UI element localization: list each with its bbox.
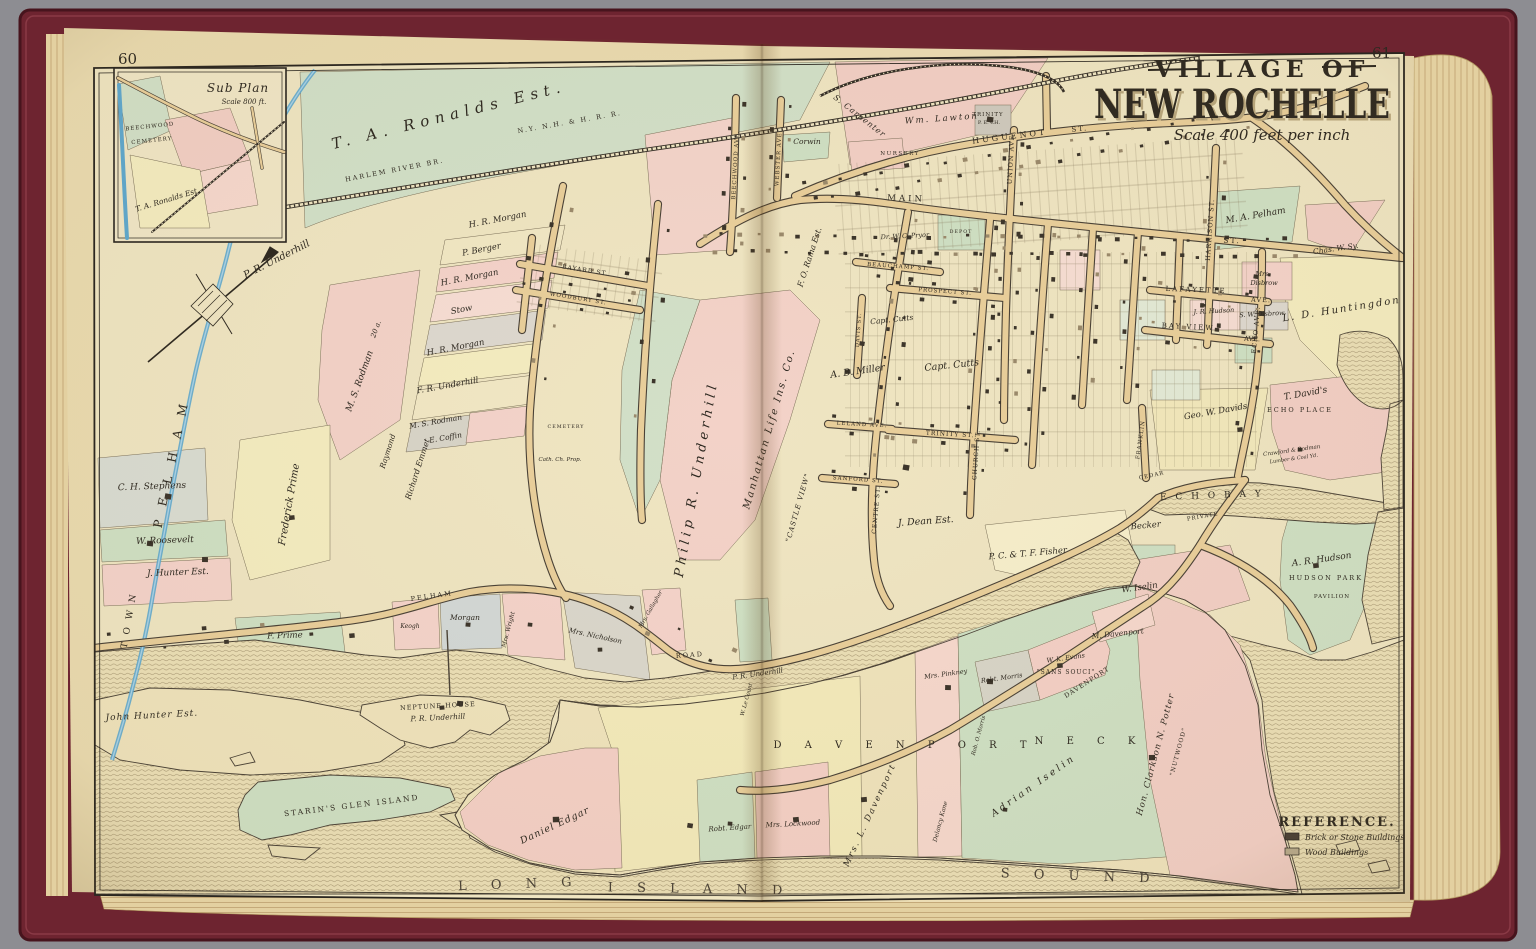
left-page-edges (46, 34, 68, 896)
atlas-photo: © Cartography Associates, David Rumsey C… (0, 0, 1536, 949)
map-scan-svg: © Cartography Associates, David Rumsey C… (0, 0, 1536, 949)
page-vignette (64, 28, 1414, 902)
right-page-edges (1414, 55, 1500, 900)
